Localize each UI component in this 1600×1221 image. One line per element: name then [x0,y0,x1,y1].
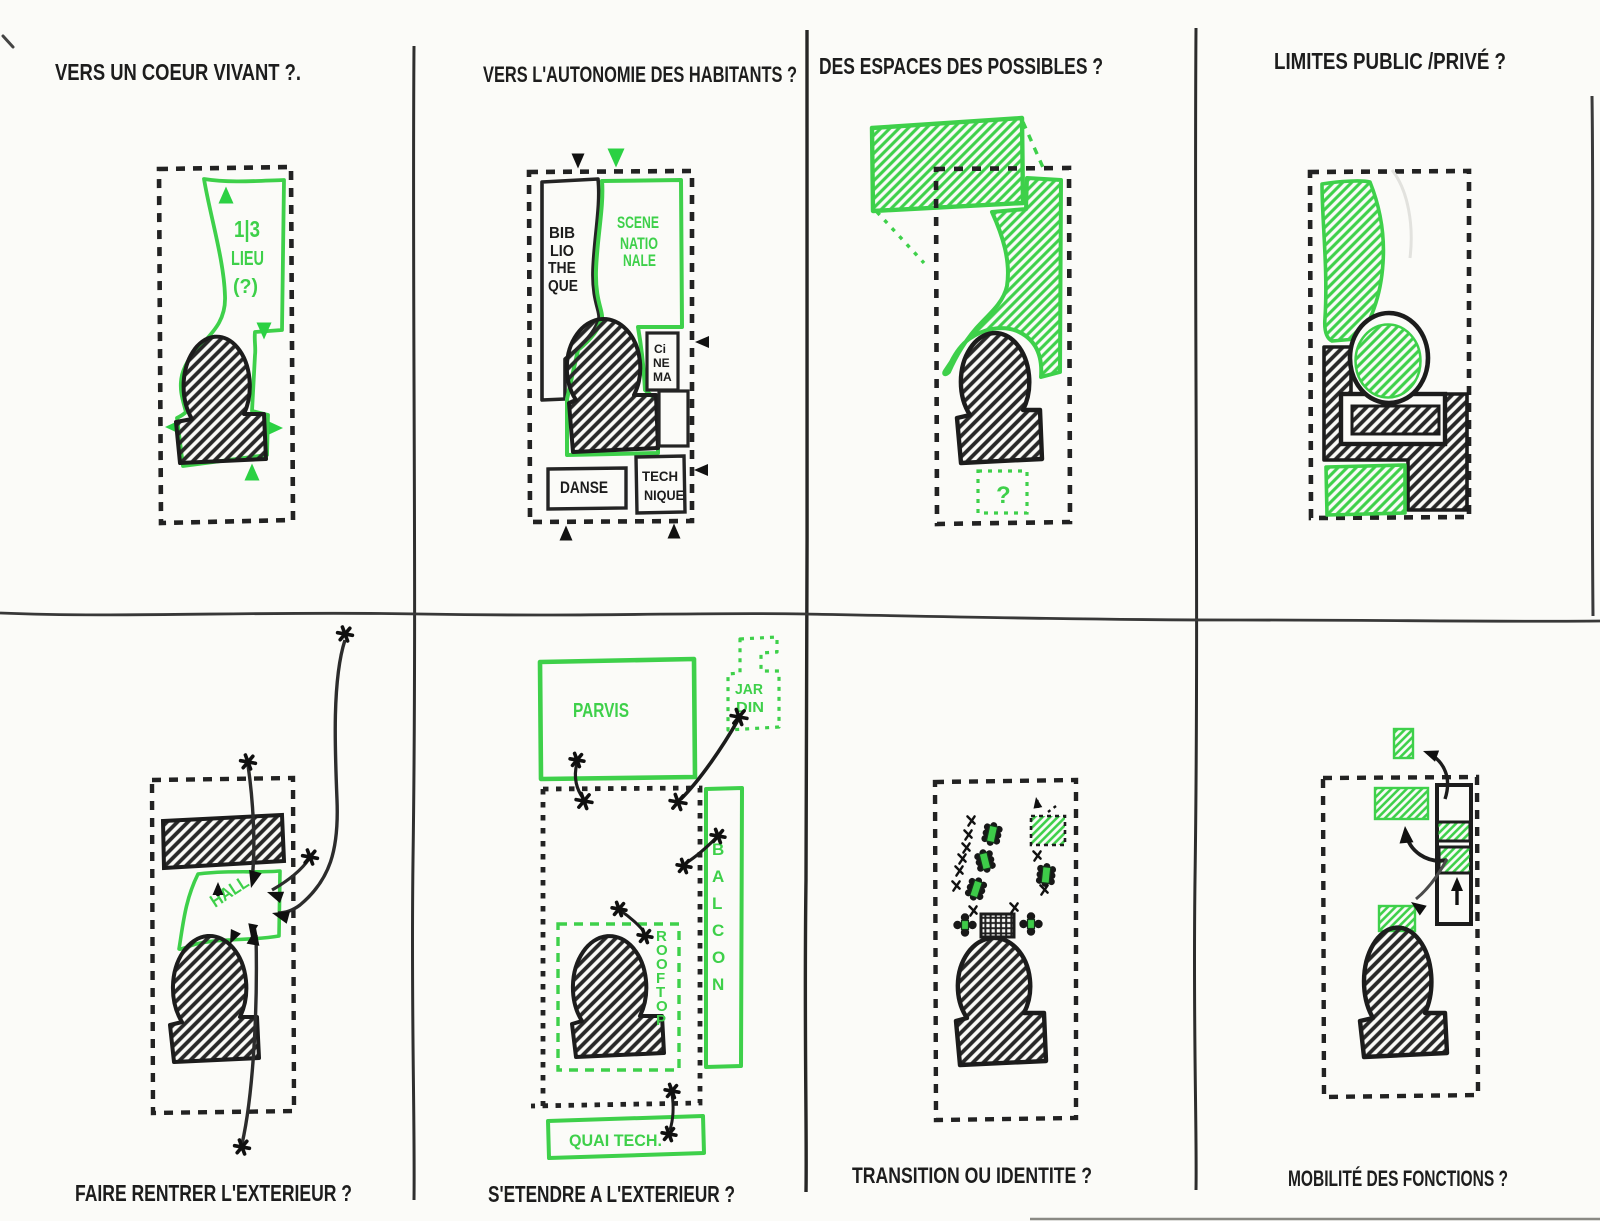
svg-text:P: P [656,1012,666,1029]
svg-text:LIMITES PUBLIC /PRIVÉ ?: LIMITES PUBLIC /PRIVÉ ? [1274,47,1506,74]
svg-text:LIO: LIO [550,243,574,260]
svg-text:THE: THE [548,260,576,277]
svg-text:A: A [712,867,724,886]
svg-text:DANSE: DANSE [560,478,608,497]
svg-text:VERS L'AUTONOMIE DES HABITANTS: VERS L'AUTONOMIE DES HABITANTS ? [483,62,797,87]
svg-text:NALE: NALE [623,251,656,270]
svg-text:MOBILITÉ DES FONCTIONS ?: MOBILITÉ DES FONCTIONS ? [1288,1166,1508,1191]
svg-text:DES ESPACES DES POSSIBLES ?: DES ESPACES DES POSSIBLES ? [819,53,1103,79]
svg-text:TECH: TECH [642,468,678,484]
svg-text:LIEU: LIEU [231,248,264,270]
svg-text:?: ? [996,482,1011,509]
svg-text:FAIRE RENTRER L'EXTERIEUR ?: FAIRE RENTRER L'EXTERIEUR ? [75,1180,352,1206]
svg-text:PARVIS: PARVIS [573,700,629,722]
svg-text:L: L [712,894,722,913]
svg-text:N: N [712,975,724,994]
svg-text:1|3: 1|3 [234,216,260,242]
svg-text:Ci: Ci [654,342,666,356]
svg-text:BIB: BIB [549,225,575,242]
svg-text:C: C [712,921,724,940]
svg-text:(?): (?) [233,276,258,298]
svg-text:TRANSITION OU IDENTITE ?: TRANSITION OU IDENTITE ? [852,1163,1092,1188]
svg-text:SCENE: SCENE [617,213,659,232]
svg-text:VERS UN COEUR VIVANT ?.: VERS UN COEUR VIVANT ?. [55,59,301,85]
svg-text:JAR: JAR [735,681,763,698]
svg-text:NE: NE [653,356,670,370]
svg-text:S'ETENDRE A L'EXTERIEUR ?: S'ETENDRE A L'EXTERIEUR ? [488,1181,735,1207]
svg-text:MA: MA [653,370,672,384]
svg-text:NIQUE: NIQUE [644,487,684,503]
svg-text:O: O [712,948,725,967]
svg-text:QUE: QUE [548,278,578,295]
svg-text:QUAI TECH.: QUAI TECH. [569,1131,662,1150]
